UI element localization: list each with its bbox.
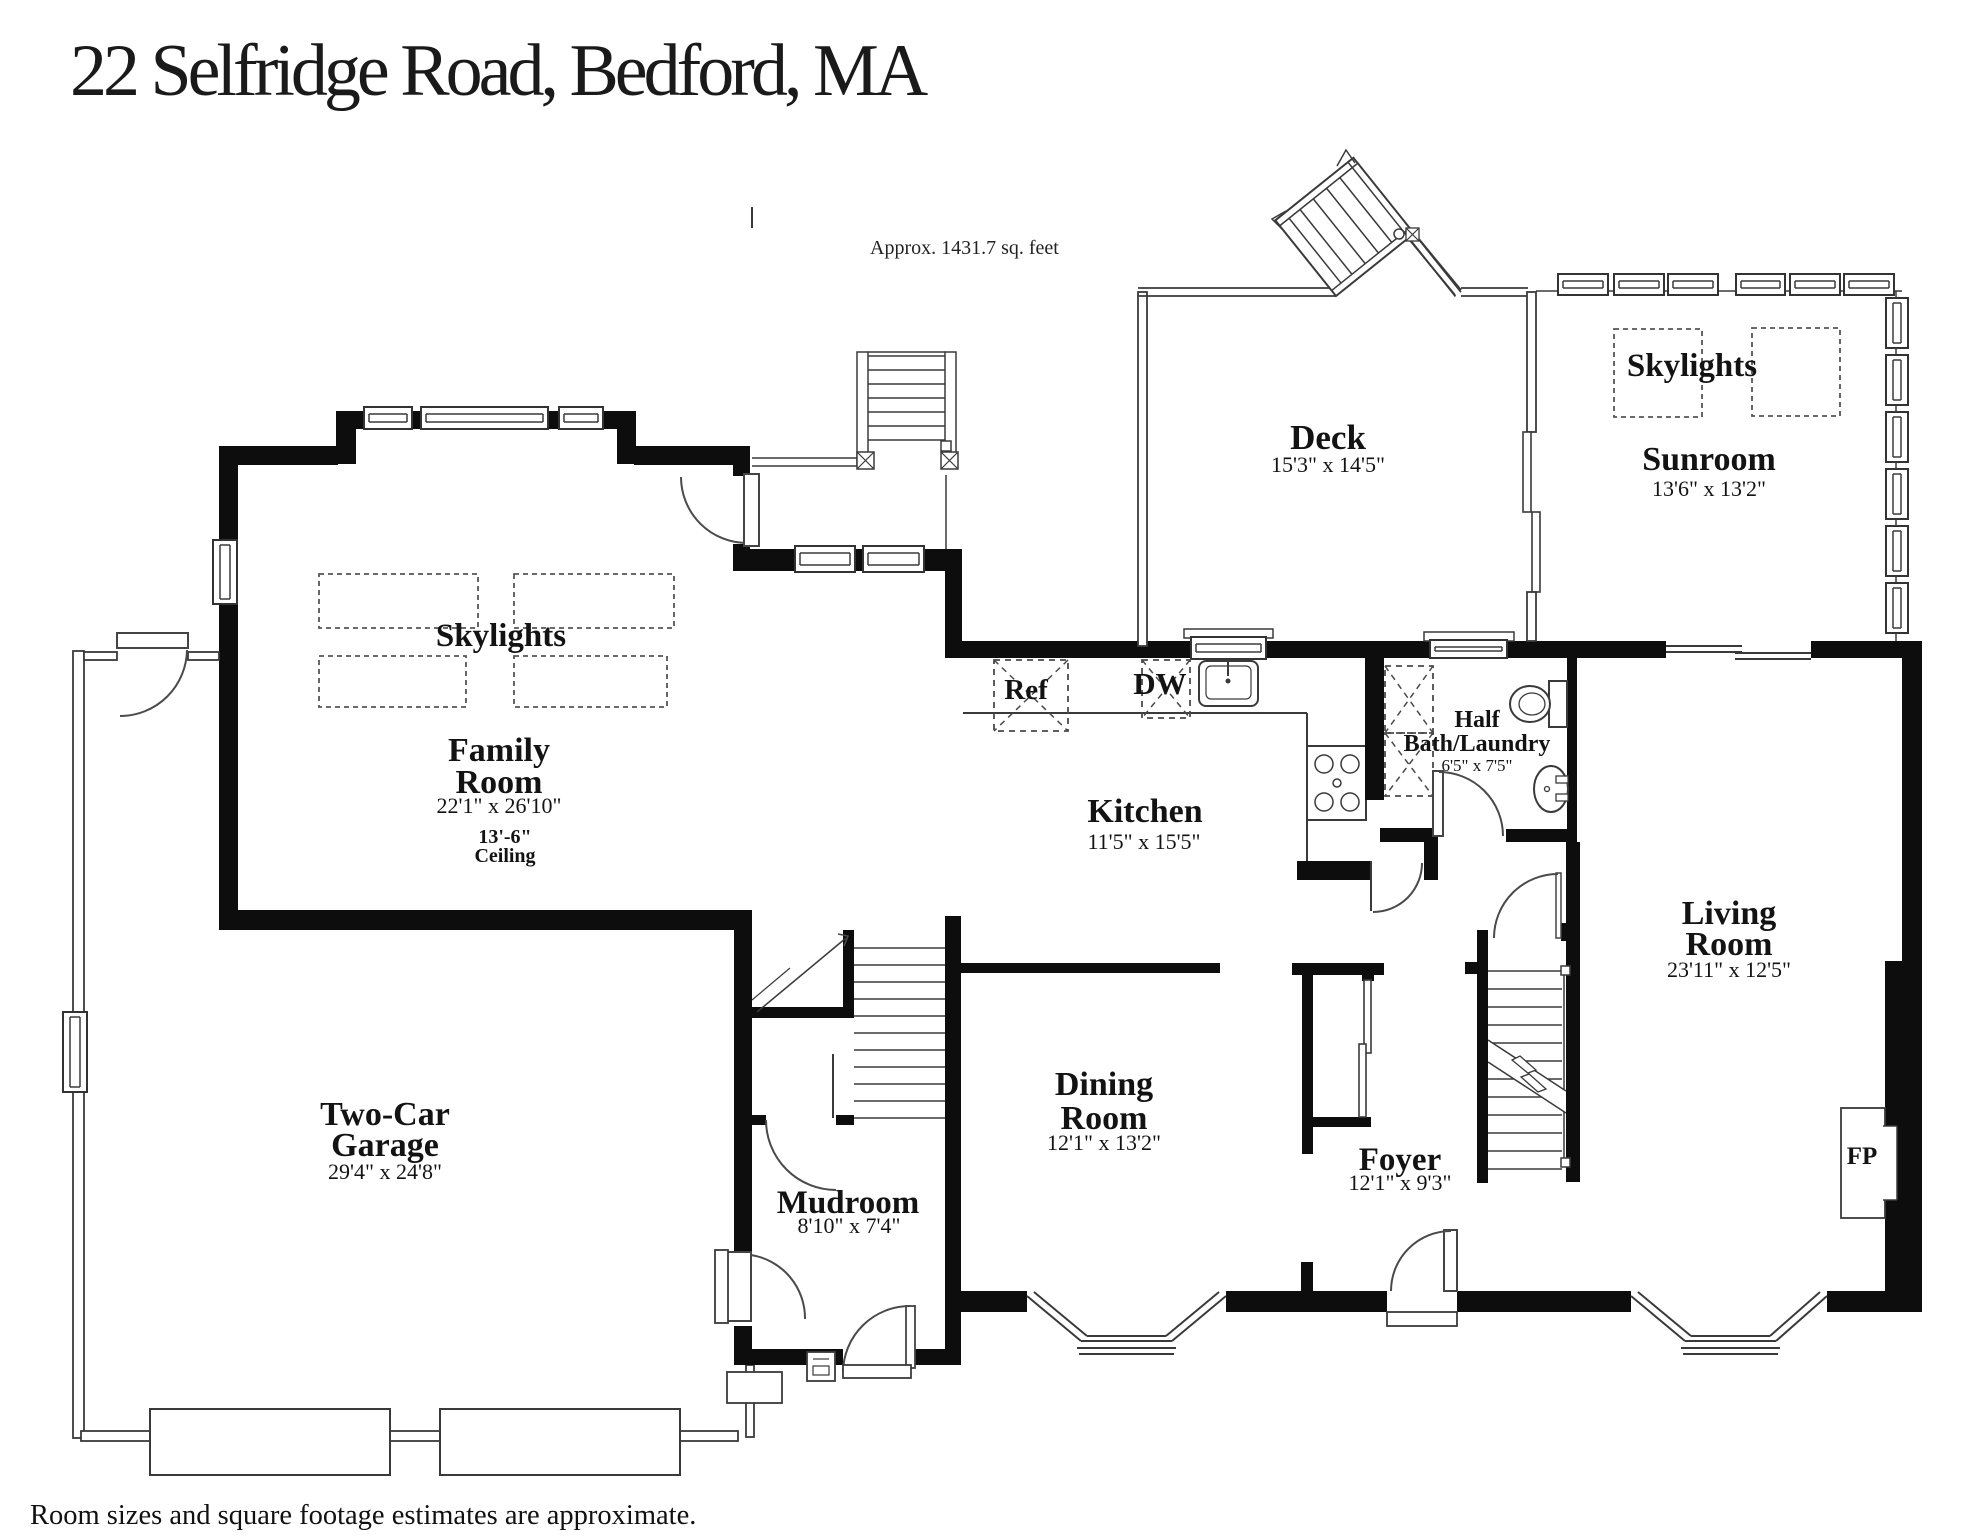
svg-text:DW: DW: [1133, 666, 1186, 701]
svg-text:Ref: Ref: [1004, 674, 1048, 706]
svg-text:12'1" x 13'2": 12'1" x 13'2": [1047, 1130, 1161, 1155]
svg-text:Kitchen: Kitchen: [1087, 793, 1202, 830]
svg-text:22 Selfridge Road, Bedford, MA: 22 Selfridge Road, Bedford, MA: [70, 30, 928, 112]
svg-text:Dining: Dining: [1055, 1066, 1153, 1103]
svg-text:13'6" x 13'2": 13'6" x 13'2": [1652, 476, 1766, 501]
svg-text:Ceiling: Ceiling: [474, 845, 535, 867]
svg-text:Skylights: Skylights: [436, 618, 566, 654]
svg-text:15'3" x 14'5": 15'3" x 14'5": [1271, 452, 1385, 477]
svg-text:Bath/Laundry: Bath/Laundry: [1404, 731, 1551, 757]
svg-text:12'1" x 9'3": 12'1" x 9'3": [1349, 1170, 1452, 1195]
svg-text:Approx. 1431.7 sq. feet: Approx. 1431.7 sq. feet: [870, 237, 1059, 259]
svg-text:Half: Half: [1454, 707, 1500, 733]
svg-text:6'5" x 7'5": 6'5" x 7'5": [1441, 756, 1512, 775]
svg-text:8'10" x 7'4": 8'10" x 7'4": [798, 1213, 901, 1238]
svg-text:Skylights: Skylights: [1627, 348, 1757, 384]
svg-text:Room sizes and square footage: Room sizes and square footage estimates …: [30, 1500, 696, 1531]
svg-text:22'1" x 26'10": 22'1" x 26'10": [437, 793, 562, 818]
svg-text:Sunroom: Sunroom: [1642, 441, 1776, 478]
svg-text:11'5" x 15'5": 11'5" x 15'5": [1087, 829, 1200, 854]
svg-text:29'4" x 24'8": 29'4" x 24'8": [328, 1159, 442, 1184]
svg-text:23'11" x 12'5": 23'11" x 12'5": [1667, 957, 1791, 982]
svg-text:FP: FP: [1847, 1143, 1878, 1170]
